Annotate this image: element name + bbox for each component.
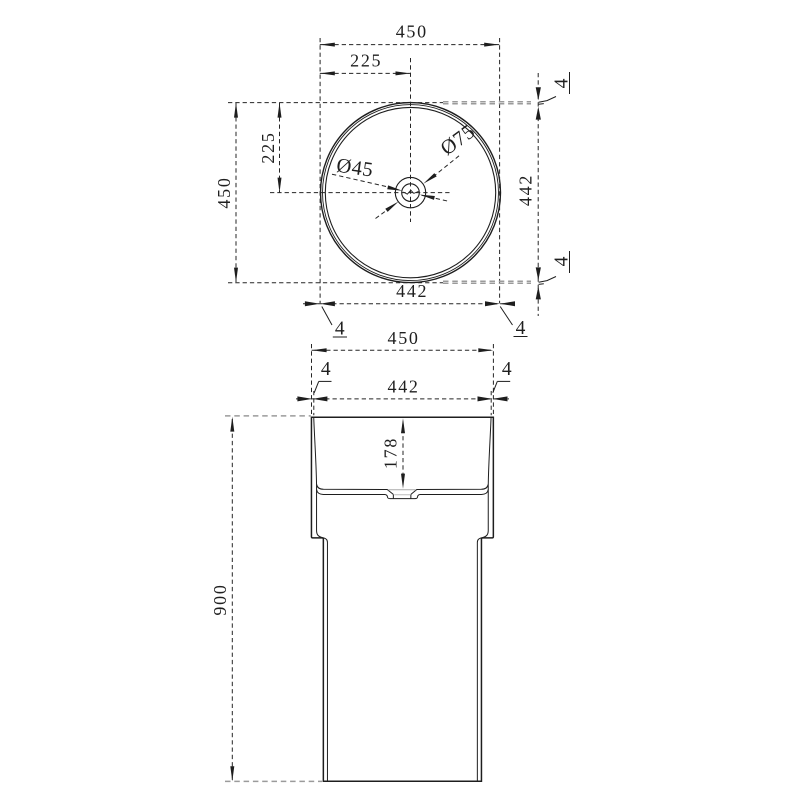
svg-text:178: 178 (380, 437, 400, 469)
svg-text:442: 442 (388, 377, 420, 397)
svg-text:4: 4 (552, 78, 573, 88)
svg-text:225: 225 (258, 131, 278, 163)
svg-text:4: 4 (502, 359, 512, 380)
svg-text:Ø75: Ø75 (437, 121, 480, 160)
svg-text:225: 225 (350, 51, 382, 71)
svg-text:4: 4 (516, 318, 526, 339)
svg-text:442: 442 (516, 174, 536, 206)
svg-text:4: 4 (552, 256, 573, 266)
svg-text:442: 442 (396, 281, 428, 301)
svg-text:450: 450 (396, 22, 428, 42)
svg-text:Ø45: Ø45 (335, 155, 375, 182)
svg-text:450: 450 (214, 176, 234, 208)
svg-text:900: 900 (210, 583, 230, 615)
svg-text:450: 450 (388, 328, 420, 348)
svg-text:4: 4 (335, 319, 345, 340)
svg-text:4: 4 (321, 359, 331, 380)
